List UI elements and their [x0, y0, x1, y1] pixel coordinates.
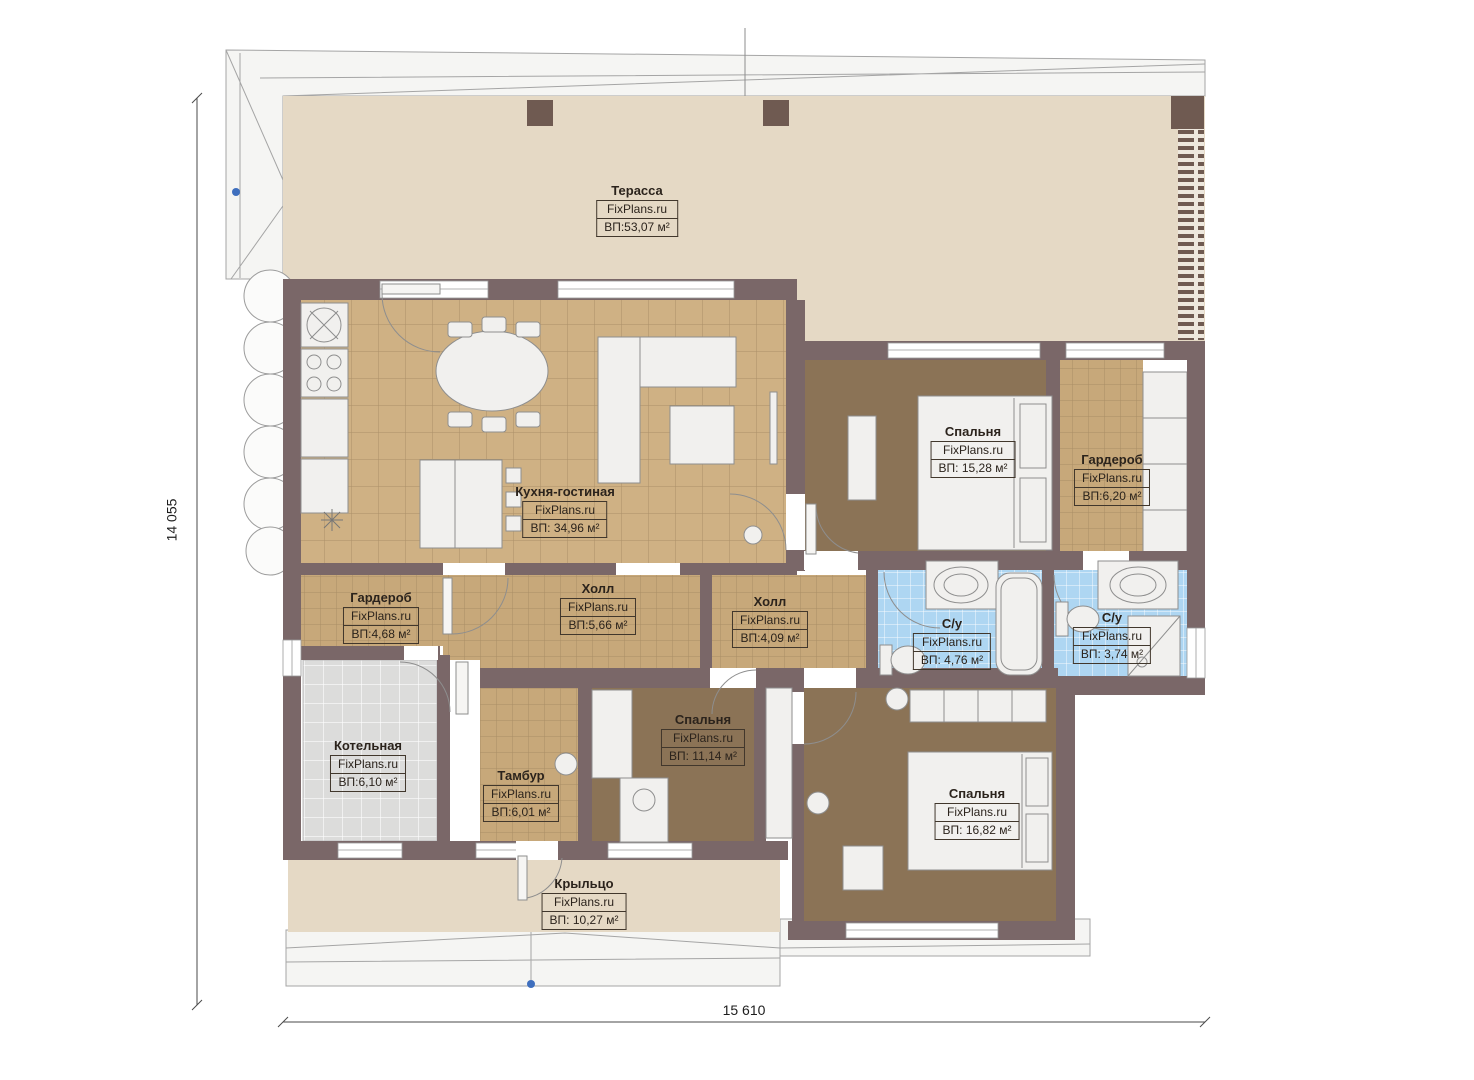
bathtub [996, 573, 1042, 675]
bedroom-1-bed [918, 396, 1052, 550]
fridge-symbol [321, 509, 343, 531]
kitchen-sink [301, 303, 348, 347]
roof-outline-porch [286, 930, 780, 986]
kitchen-cabinet [301, 459, 348, 513]
hall-1-floor [443, 575, 700, 668]
bedroom-3-wardrobe [910, 690, 1046, 722]
coffee-table [670, 406, 734, 464]
bedroom-2-chair [633, 789, 655, 811]
bedroom-2-bed [592, 690, 632, 778]
terrace-column [763, 100, 789, 126]
terrace-column [1171, 96, 1204, 129]
bathroom-1-sink [926, 561, 998, 609]
wardrobe-2-floor [301, 575, 443, 646]
shower [1128, 616, 1180, 676]
dimension-height-label: 14 055 [163, 499, 179, 542]
bedroom-3-stool [886, 688, 908, 710]
bedroom-3-bed [908, 752, 1052, 870]
vestibule-stool [555, 753, 577, 775]
kitchen-cabinet [301, 399, 348, 457]
porch-floor [288, 858, 780, 932]
built-in-closet [766, 688, 792, 838]
floor-plan-drawing [0, 0, 1474, 1080]
floor-lamp [744, 526, 762, 544]
terrace-column [527, 100, 553, 126]
boiler-room-floor [303, 660, 437, 841]
bathroom-1-toilet [880, 645, 925, 675]
kitchen-stove [301, 349, 348, 397]
bedroom-1-dresser [848, 416, 876, 500]
tv-console [770, 392, 777, 464]
terrace-trellis [1178, 128, 1204, 340]
dimension-width-label: 15 610 [723, 1002, 766, 1018]
bedroom-3-desk [843, 846, 883, 890]
bathroom-2-sink [1098, 561, 1178, 609]
wardrobe-1-shelves [1143, 372, 1187, 554]
floor-plan-page: Терасса FixPlans.ru ВП:53,07 м² Кухня-го… [0, 0, 1474, 1080]
bedroom-3-chair [807, 792, 829, 814]
hall-2-floor [712, 575, 866, 668]
wardrobe-1-floor [1060, 360, 1143, 551]
